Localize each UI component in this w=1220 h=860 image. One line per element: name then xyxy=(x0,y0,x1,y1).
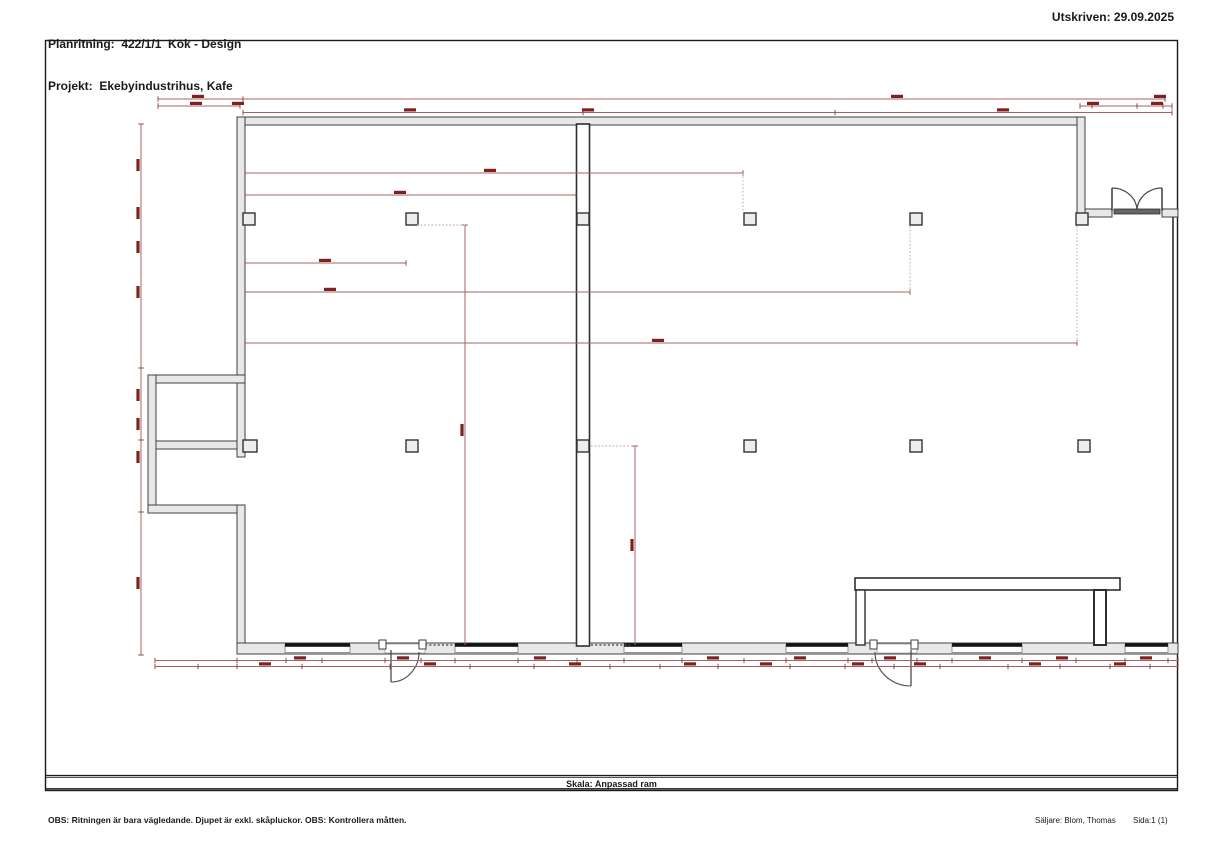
floor-plan-svg xyxy=(0,0,1220,860)
footer-note: OBS: Ritningen är bara vägledande. Djupe… xyxy=(48,815,407,825)
seller-label: Säljare: Blom, Thomas xyxy=(1035,816,1116,825)
page-label: Sida:1 (1) xyxy=(1133,816,1168,825)
scale-label: Skala: Anpassad ram xyxy=(45,779,1178,789)
